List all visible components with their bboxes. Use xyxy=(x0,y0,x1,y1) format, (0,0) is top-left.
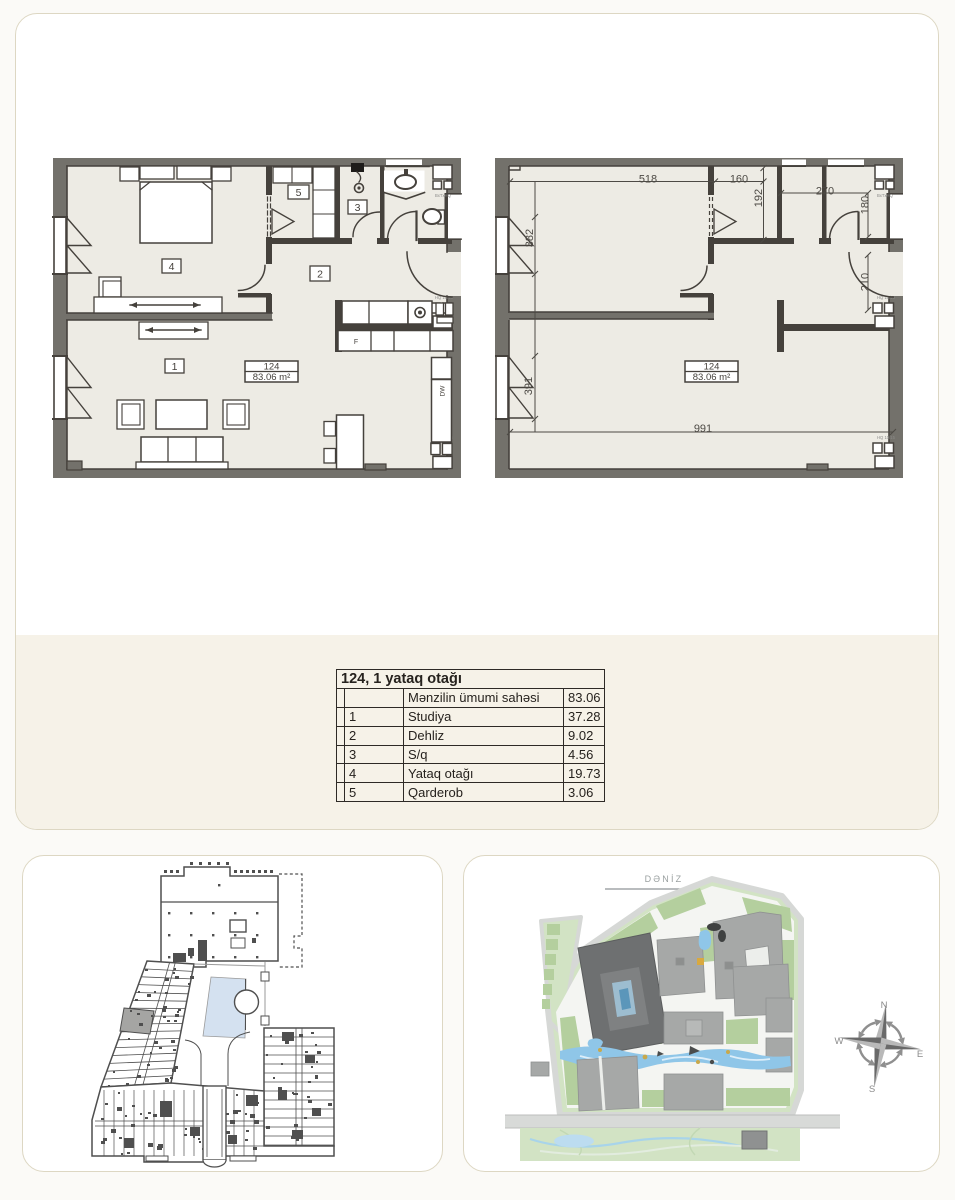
svg-text:382: 382 xyxy=(524,229,536,247)
svg-text:3: 3 xyxy=(355,202,361,214)
svg-text:BxTxHQ: BxTxHQ xyxy=(435,193,452,198)
svg-text:4: 4 xyxy=(169,261,175,273)
svg-text:83.06 m²: 83.06 m² xyxy=(693,372,731,383)
svg-text:2: 2 xyxy=(317,268,323,280)
svg-text:S: S xyxy=(869,1084,875,1095)
svg-text:DW: DW xyxy=(440,385,447,397)
svg-text:160: 160 xyxy=(730,173,748,185)
svg-text:W: W xyxy=(835,1036,844,1047)
svg-text:192: 192 xyxy=(753,189,765,207)
svg-text:BxTxHQ: BxTxHQ xyxy=(877,193,894,198)
svg-text:5: 5 xyxy=(296,187,302,199)
svg-text:210: 210 xyxy=(859,273,871,291)
svg-text:N: N xyxy=(881,1000,888,1011)
svg-text:180: 180 xyxy=(859,196,871,214)
svg-text:124: 124 xyxy=(704,362,720,373)
svg-text:518: 518 xyxy=(639,173,657,185)
svg-text:124: 124 xyxy=(264,362,280,373)
svg-text:E: E xyxy=(917,1049,923,1060)
svg-text:991: 991 xyxy=(694,423,712,435)
svg-text:1: 1 xyxy=(172,361,178,373)
svg-text:HQ 10/15: HQ 10/15 xyxy=(877,435,896,440)
svg-text:391: 391 xyxy=(523,377,535,395)
svg-text:270: 270 xyxy=(816,185,834,197)
svg-text:83.06 m²: 83.06 m² xyxy=(253,372,291,383)
svg-text:F: F xyxy=(354,339,358,346)
svg-text:DƏNİZ: DƏNİZ xyxy=(645,874,684,884)
